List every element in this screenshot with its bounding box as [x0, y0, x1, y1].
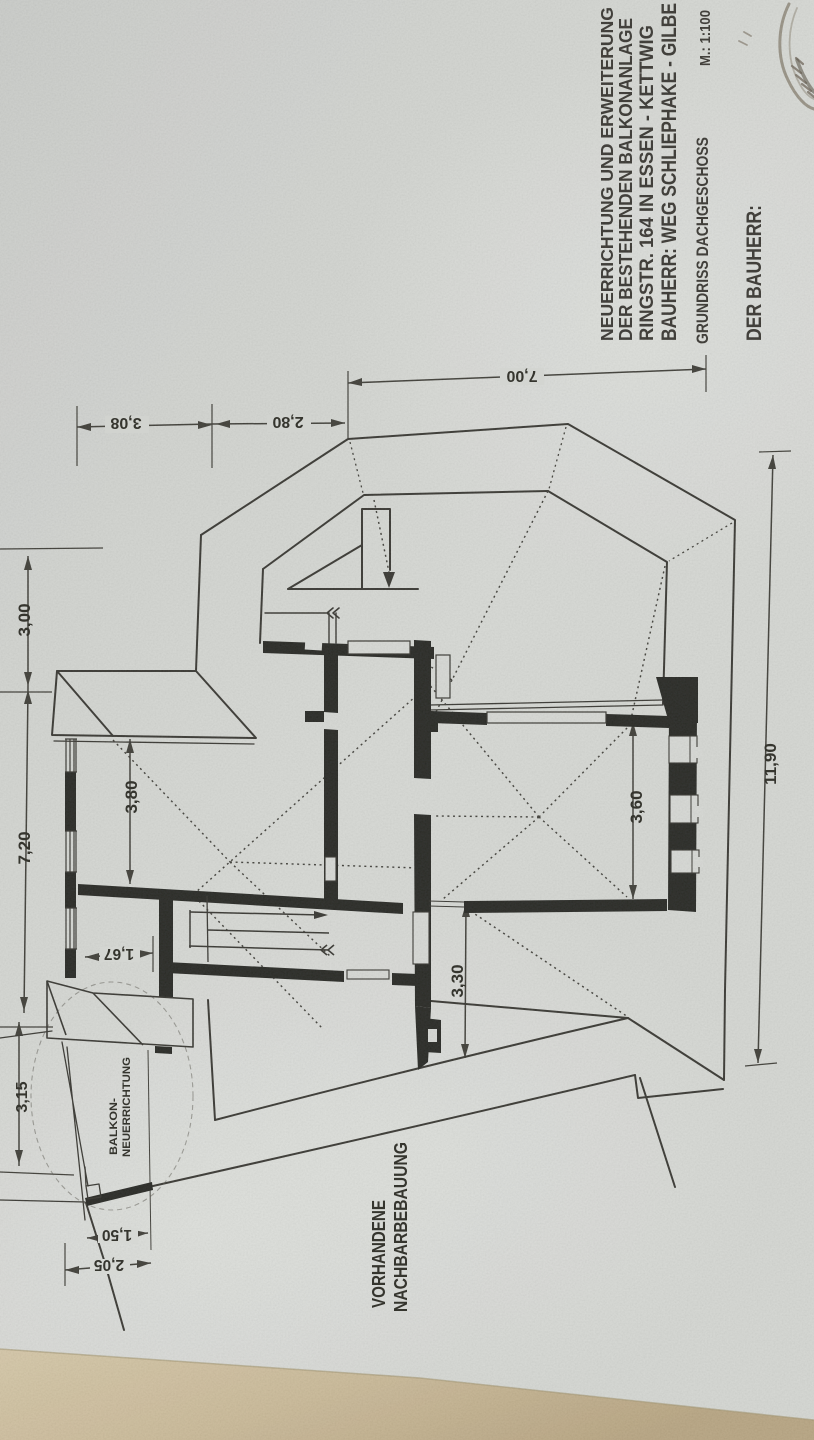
svg-text:NEUERRICHTUNG: NEUERRICHTUNG [121, 1057, 133, 1157]
svg-text:NACHBARBEBAUUNG: NACHBARBEBAUUNG [391, 1142, 411, 1312]
svg-text:BALKON-: BALKON- [108, 1098, 120, 1155]
svg-text:2,05: 2,05 [94, 1256, 125, 1273]
svg-text:3,08: 3,08 [110, 414, 141, 431]
svg-text:7,00: 7,00 [506, 367, 537, 384]
svg-text:11,90: 11,90 [761, 743, 780, 785]
svg-text:3,60: 3,60 [627, 790, 646, 823]
svg-text:3,15: 3,15 [14, 1081, 31, 1112]
svg-text:1,67: 1,67 [104, 945, 134, 962]
svg-text:3,80: 3,80 [122, 780, 141, 813]
svg-text:VORHANDENE: VORHANDENE [369, 1200, 389, 1308]
svg-text:3,30: 3,30 [448, 964, 467, 997]
svg-text:1,50: 1,50 [102, 1226, 132, 1243]
svg-text:7,20: 7,20 [15, 831, 34, 864]
svg-text:2,80: 2,80 [272, 413, 303, 430]
svg-text:3,00: 3,00 [15, 603, 34, 636]
